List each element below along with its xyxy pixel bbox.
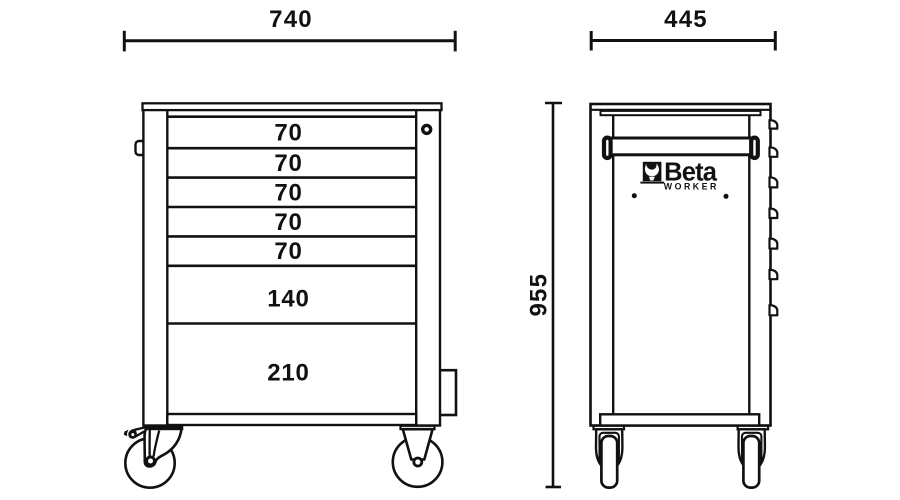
svg-text:70: 70 [274, 150, 302, 177]
svg-text:955: 955 [526, 273, 553, 317]
svg-text:210: 210 [267, 360, 309, 387]
svg-text:70: 70 [274, 238, 302, 265]
svg-text:70: 70 [274, 209, 302, 236]
svg-text:70: 70 [274, 120, 302, 147]
svg-text:740: 740 [269, 6, 313, 33]
svg-text:WORKER: WORKER [664, 181, 719, 191]
svg-text:445: 445 [664, 6, 708, 33]
svg-text:70: 70 [274, 179, 302, 206]
svg-text:140: 140 [267, 286, 309, 313]
